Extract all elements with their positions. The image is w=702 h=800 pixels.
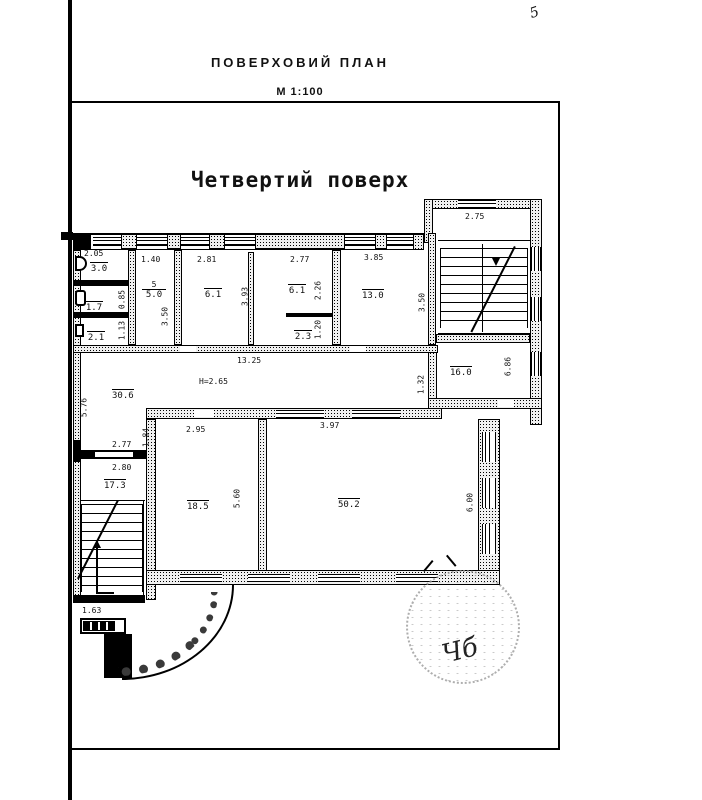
room-area-wc-top: 3.0 [90, 262, 108, 274]
door-opening-2 [350, 346, 366, 352]
north-window-1 [93, 237, 121, 246]
room5-number: 5 [142, 280, 166, 290]
north-pier-1 [121, 234, 137, 249]
stair-direction-arrow-icon [492, 258, 500, 266]
dim-3-85: 3.85 [364, 253, 383, 262]
dim-1-13: 1.13 [118, 316, 127, 346]
upper-stair-divider [482, 244, 483, 332]
door-opening-1 [180, 346, 196, 352]
dim-3-50-left: 3.50 [161, 302, 170, 332]
room-area-wc-bot: 2.1 [87, 331, 105, 343]
dim-0-85: 0.85 [118, 285, 127, 315]
sheet-right-border [558, 101, 560, 750]
dim-1-32: 1.32 [417, 370, 426, 400]
stair-block-top-window [458, 200, 496, 209]
plan-top-left-corner-block [73, 233, 91, 250]
dim-2-26: 2.26 [314, 276, 323, 306]
corridor-transom-1 [276, 410, 324, 418]
north-pier-4 [375, 234, 387, 249]
north-window-6 [387, 237, 413, 246]
stair-arrow-stem [96, 548, 98, 594]
room16-top-wall [436, 334, 530, 343]
registration-tick [61, 232, 73, 240]
sheet-left-border [68, 0, 72, 800]
room-area-173: 17.3 [104, 479, 126, 491]
basin-icon [75, 324, 84, 337]
round-stamp [406, 570, 520, 684]
dim-13-25: 13.25 [237, 356, 261, 365]
dim-1-84: 1.84 [142, 423, 151, 453]
dim-2-05: 2.05 [84, 249, 103, 258]
room-area-23: 2.3 [294, 330, 312, 342]
top-band-bottom-wall [73, 345, 438, 353]
cross-wall-jamb-left [81, 450, 95, 459]
east-window-2 [482, 478, 496, 508]
drawing-title: ПОВЕРХОВИЙ ПЛАН [150, 55, 450, 70]
room16-left-wall [428, 345, 437, 400]
room5-label: 5 5.0 [142, 280, 166, 300]
dim-5-60: 5.60 [233, 484, 242, 514]
north-window-3 [181, 237, 209, 246]
dim-6-00: 6.00 [466, 488, 475, 518]
room-area-wc-mid: 1.7 [85, 301, 103, 313]
corridor-area: 30.6 [112, 389, 134, 401]
room16-bottom-wall [428, 398, 542, 409]
room-area-502: 50.2 [338, 498, 360, 510]
north-window-5 [345, 237, 375, 246]
stair-up-arrow-icon [93, 540, 101, 548]
corridor-transom-2 [352, 410, 400, 418]
dim-2-80: 2.80 [112, 463, 131, 472]
grate-block [83, 621, 115, 631]
dim-5-76: 5.76 [80, 393, 89, 423]
upper-stair-treads [440, 248, 528, 328]
dim-2-75: 2.75 [465, 212, 484, 221]
room-area-16: 16.0 [450, 366, 472, 378]
dim-1-20: 1.20 [314, 315, 323, 345]
drawing-scale: М 1:100 [150, 86, 450, 98]
wc-right-wall [128, 250, 136, 345]
south-window-1 [180, 574, 222, 582]
sheet-bottom-rule [71, 748, 560, 750]
dim-1-63: 1.63 [82, 606, 101, 615]
room185-room502-partition [258, 419, 267, 571]
stair-arrow-stem-foot [96, 592, 114, 594]
east-window-3 [482, 524, 496, 554]
room6b-right-wall [332, 250, 341, 345]
stair-inner-left-wall [428, 233, 436, 345]
dim-1-40: 1.40 [141, 255, 160, 264]
north-pier-wide [255, 234, 345, 249]
handwritten-corner-mark: 5 [528, 4, 541, 22]
room6b-room23-divider [286, 313, 333, 317]
north-pier-5 [413, 234, 424, 250]
south-window-2 [248, 574, 290, 582]
west-wall [73, 352, 81, 600]
dim-2-77-left: 2.77 [112, 440, 131, 449]
scanned-floor-plan-sheet: ПОВЕРХОВИЙ ПЛАН М 1:100 5 Четвертий пове… [0, 0, 702, 800]
dim-2-81: 2.81 [197, 255, 216, 264]
curved-wall [118, 592, 218, 676]
north-window-4 [225, 237, 255, 246]
dim-2-95: 2.95 [186, 425, 205, 434]
room16-door-opening [498, 400, 514, 407]
room-area-6b: 6.1 [288, 284, 306, 296]
stair-top-landing-line [438, 240, 530, 241]
north-pier-3 [209, 234, 225, 249]
stair-right-window-3 [531, 352, 541, 376]
east-window-1 [482, 432, 496, 462]
lower-stair-treads [81, 504, 143, 592]
north-pier-2 [167, 234, 181, 249]
dim-6-86: 6.86 [504, 352, 513, 382]
room-area-185: 18.5 [187, 500, 209, 512]
dim-3-93: 3.93 [241, 282, 250, 312]
stair-right-window-2 [531, 297, 541, 321]
dim-3-50-right: 3.50 [418, 288, 427, 318]
corridor-door-opening [194, 410, 214, 417]
room5-area: 5.0 [142, 290, 166, 300]
west-wall-black-segment [73, 440, 81, 462]
sink-icon [75, 256, 87, 271]
room-area-6a: 6.1 [204, 288, 222, 300]
lower-stair-edge-line [143, 500, 144, 595]
sheet-top-rule [71, 101, 560, 103]
room5-right-wall [174, 250, 182, 345]
floor-heading: Четвертий поверх [191, 168, 409, 192]
dim-3-97: 3.97 [320, 421, 339, 430]
lower-stair-landing-line [81, 500, 145, 501]
north-window-2 [137, 237, 167, 246]
room-area-13: 13.0 [362, 289, 384, 301]
ceiling-height-note: Н=2.65 [199, 377, 228, 386]
stair-right-window-1 [531, 247, 541, 271]
hatch-mark-2 [446, 555, 457, 567]
south-window-3 [318, 574, 360, 582]
dim-2-77-top: 2.77 [290, 255, 309, 264]
